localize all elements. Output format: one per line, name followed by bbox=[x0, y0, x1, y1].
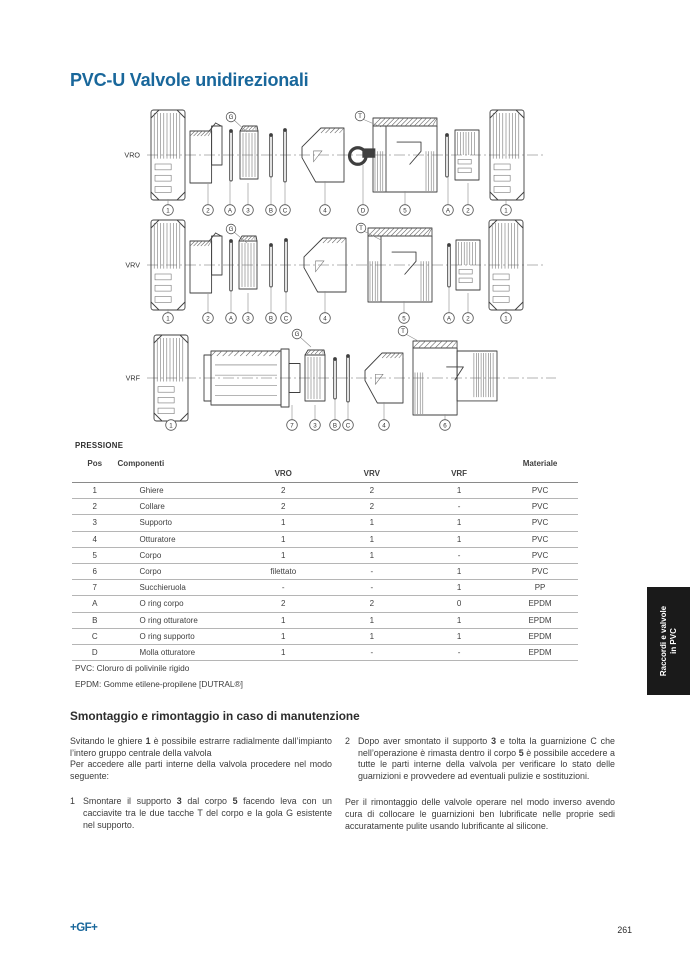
sidebar-tab: Raccordi e valvole in PVC bbox=[647, 587, 690, 695]
pressure-table: Pos Componenti Materiale VRO VRV VRF 1Gh… bbox=[72, 455, 578, 661]
svg-text:3: 3 bbox=[246, 315, 250, 322]
list-item: 1Smontare il supporto 3 dal corpo 5 face… bbox=[70, 796, 332, 831]
table-cell: Ghiere bbox=[118, 483, 239, 499]
svg-text:A: A bbox=[229, 315, 234, 322]
table-cell: EPDM bbox=[502, 612, 578, 628]
page-number: 261 bbox=[560, 925, 632, 935]
table-cell: 0 bbox=[416, 596, 502, 612]
table-row: 2Collare22-PVC bbox=[72, 499, 578, 515]
table-cell: - bbox=[328, 644, 417, 660]
table-cell: 1 bbox=[416, 628, 502, 644]
svg-text:3: 3 bbox=[246, 207, 250, 214]
svg-text:G: G bbox=[229, 114, 234, 121]
svg-text:1: 1 bbox=[166, 207, 170, 214]
table-cell: - bbox=[239, 580, 328, 596]
svg-text:T: T bbox=[358, 113, 362, 120]
table-cell: 2 bbox=[239, 483, 328, 499]
table-cell: Supporto bbox=[118, 515, 239, 531]
col-header-materiale: Materiale bbox=[502, 455, 578, 469]
table-cell: 1 bbox=[239, 547, 328, 563]
table-cell: 2 bbox=[239, 596, 328, 612]
table-cell: 2 bbox=[328, 499, 417, 515]
sidebar-tab-text: Raccordi e valvole in PVC bbox=[659, 606, 679, 676]
svg-text:C: C bbox=[283, 207, 288, 214]
svg-text:5: 5 bbox=[403, 207, 407, 214]
table-cell: 1 bbox=[239, 531, 328, 547]
footnote: EPDM: Gomme etilene-propilene [DUTRAL®] bbox=[75, 677, 243, 693]
table-cell: 7 bbox=[72, 580, 118, 596]
sidebar-tab-line1: Raccordi e valvole bbox=[659, 606, 669, 676]
table-cell: 6 bbox=[72, 563, 118, 579]
table-cell: 3 bbox=[72, 515, 118, 531]
pressure-section-label: PRESSIONE bbox=[75, 441, 123, 450]
svg-text:A: A bbox=[228, 207, 233, 214]
gf-logo: +GF+ bbox=[70, 922, 97, 934]
svg-text:2: 2 bbox=[466, 315, 470, 322]
paragraph: Per accedere alle parti interne della va… bbox=[70, 759, 332, 782]
table-row: 7Succhieruola--1PP bbox=[72, 580, 578, 596]
maintenance-heading: Smontaggio e rimontaggio in caso di manu… bbox=[70, 709, 360, 723]
svg-text:G: G bbox=[229, 226, 234, 233]
table-cell: O ring corpo bbox=[118, 596, 239, 612]
svg-text:2: 2 bbox=[466, 207, 470, 214]
svg-text:C: C bbox=[346, 422, 351, 429]
svg-text:A: A bbox=[446, 207, 451, 214]
table-cell: 1 bbox=[416, 483, 502, 499]
table-row: CO ring supporto111EPDM bbox=[72, 628, 578, 644]
svg-text:T: T bbox=[359, 225, 363, 232]
table-cell: Molla otturatore bbox=[118, 644, 239, 660]
table-cell: 1 bbox=[328, 628, 417, 644]
table-cell: filettato bbox=[239, 563, 328, 579]
table-row: 5Corpo11-PVC bbox=[72, 547, 578, 563]
table-cell: 2 bbox=[328, 483, 417, 499]
table-cell: - bbox=[416, 644, 502, 660]
svg-text:G: G bbox=[295, 331, 300, 338]
svg-text:A: A bbox=[447, 315, 452, 322]
svg-text:B: B bbox=[269, 207, 273, 214]
table-cell: - bbox=[328, 563, 417, 579]
table-cell: 1 bbox=[239, 612, 328, 628]
table-row: DMolla otturatore1--EPDM bbox=[72, 644, 578, 660]
table-footnotes: PVC: Cloruro di polivinile rigidoEPDM: G… bbox=[75, 661, 243, 692]
table-cell: PVC bbox=[502, 547, 578, 563]
table-row: BO ring otturatore111EPDM bbox=[72, 612, 578, 628]
maintenance-right-column: 2Dopo aver smontato il supporto 3 e tolt… bbox=[345, 736, 615, 832]
svg-text:D: D bbox=[361, 207, 366, 214]
table-cell: O ring otturatore bbox=[118, 612, 239, 628]
svg-text:1: 1 bbox=[166, 315, 170, 322]
col-header-vrv: VRV bbox=[328, 469, 417, 483]
table-cell: 1 bbox=[416, 563, 502, 579]
table-row: 1Ghiere221PVC bbox=[72, 483, 578, 499]
svg-text:4: 4 bbox=[382, 422, 386, 429]
table-row: AO ring corpo220EPDM bbox=[72, 596, 578, 612]
table-cell: - bbox=[328, 580, 417, 596]
svg-text:2: 2 bbox=[206, 207, 210, 214]
table-cell: PP bbox=[502, 580, 578, 596]
table-cell: EPDM bbox=[502, 596, 578, 612]
table-cell: 1 bbox=[328, 547, 417, 563]
col-header-componenti: Componenti bbox=[118, 455, 239, 469]
svg-text:VRO: VRO bbox=[124, 151, 140, 160]
page-title: PVC-U Valvole unidirezionali bbox=[70, 70, 308, 91]
table-cell: D bbox=[72, 644, 118, 660]
table-cell: 1 bbox=[416, 531, 502, 547]
table-cell: EPDM bbox=[502, 628, 578, 644]
table-cell: - bbox=[416, 499, 502, 515]
table-cell: 1 bbox=[416, 612, 502, 628]
svg-text:C: C bbox=[284, 315, 289, 322]
table-cell: 1 bbox=[72, 483, 118, 499]
paragraph: Per il rimontaggio delle valvole operare… bbox=[345, 797, 615, 832]
table-cell: 2 bbox=[239, 499, 328, 515]
table-cell: - bbox=[416, 547, 502, 563]
table-cell: 1 bbox=[328, 612, 417, 628]
table-cell: A bbox=[72, 596, 118, 612]
paragraph: Svitando le ghiere 1 è possibile estrarr… bbox=[70, 736, 332, 759]
table-cell: 1 bbox=[239, 628, 328, 644]
footnote: PVC: Cloruro di polivinile rigido bbox=[75, 661, 243, 677]
svg-text:VRV: VRV bbox=[125, 261, 140, 270]
table-cell: Corpo bbox=[118, 547, 239, 563]
table-cell: Collare bbox=[118, 499, 239, 515]
table-cell: PVC bbox=[502, 563, 578, 579]
table-cell: O ring supporto bbox=[118, 628, 239, 644]
table-cell: EPDM bbox=[502, 644, 578, 660]
table-cell: 4 bbox=[72, 531, 118, 547]
table-cell: Otturatore bbox=[118, 531, 239, 547]
table-row: 4Otturatore111PVC bbox=[72, 531, 578, 547]
document-page: PVC-U Valvole unidirezionali VRO12A3BC4D… bbox=[0, 0, 690, 971]
table-cell: 1 bbox=[239, 515, 328, 531]
svg-text:3: 3 bbox=[313, 422, 317, 429]
table-cell: C bbox=[72, 628, 118, 644]
svg-text:2: 2 bbox=[206, 315, 210, 322]
svg-text:6: 6 bbox=[443, 422, 447, 429]
table-cell: Succhieruola bbox=[118, 580, 239, 596]
table-cell: 1 bbox=[239, 644, 328, 660]
table-cell: 1 bbox=[416, 580, 502, 596]
svg-text:1: 1 bbox=[504, 207, 508, 214]
maintenance-left-column: Svitando le ghiere 1 è possibile estrarr… bbox=[70, 736, 332, 831]
svg-text:7: 7 bbox=[290, 422, 294, 429]
svg-text:4: 4 bbox=[323, 207, 327, 214]
table-cell: 1 bbox=[328, 515, 417, 531]
table-cell: PVC bbox=[502, 499, 578, 515]
table-row: 3Supporto111PVC bbox=[72, 515, 578, 531]
table-cell: 5 bbox=[72, 547, 118, 563]
svg-text:5: 5 bbox=[402, 315, 406, 322]
table-cell: B bbox=[72, 612, 118, 628]
table-cell: 2 bbox=[72, 499, 118, 515]
sidebar-tab-line2: in PVC bbox=[669, 606, 679, 676]
svg-text:VRF: VRF bbox=[126, 374, 141, 383]
list-item: 2Dopo aver smontato il supporto 3 e tolt… bbox=[345, 736, 615, 782]
svg-text:T: T bbox=[401, 328, 405, 335]
table-cell: 1 bbox=[416, 515, 502, 531]
svg-text:1: 1 bbox=[169, 422, 173, 429]
svg-text:4: 4 bbox=[323, 315, 327, 322]
table-row: 6Corpofilettato-1PVC bbox=[72, 563, 578, 579]
list-item-number: 1 bbox=[70, 796, 83, 831]
list-item-number: 2 bbox=[345, 736, 358, 782]
table-cell: PVC bbox=[502, 483, 578, 499]
table-cell: PVC bbox=[502, 531, 578, 547]
svg-text:B: B bbox=[333, 422, 337, 429]
col-header-vrf: VRF bbox=[416, 469, 502, 483]
svg-text:B: B bbox=[269, 315, 273, 322]
pressure-table-body: 1Ghiere221PVC2Collare22-PVC3Supporto111P… bbox=[72, 483, 578, 661]
col-header-vro: VRO bbox=[239, 469, 328, 483]
table-cell: PVC bbox=[502, 515, 578, 531]
table-cell: Corpo bbox=[118, 563, 239, 579]
svg-text:1: 1 bbox=[504, 315, 508, 322]
table-cell: 1 bbox=[328, 531, 417, 547]
col-header-pos: Pos bbox=[72, 455, 118, 469]
table-cell: 2 bbox=[328, 596, 417, 612]
